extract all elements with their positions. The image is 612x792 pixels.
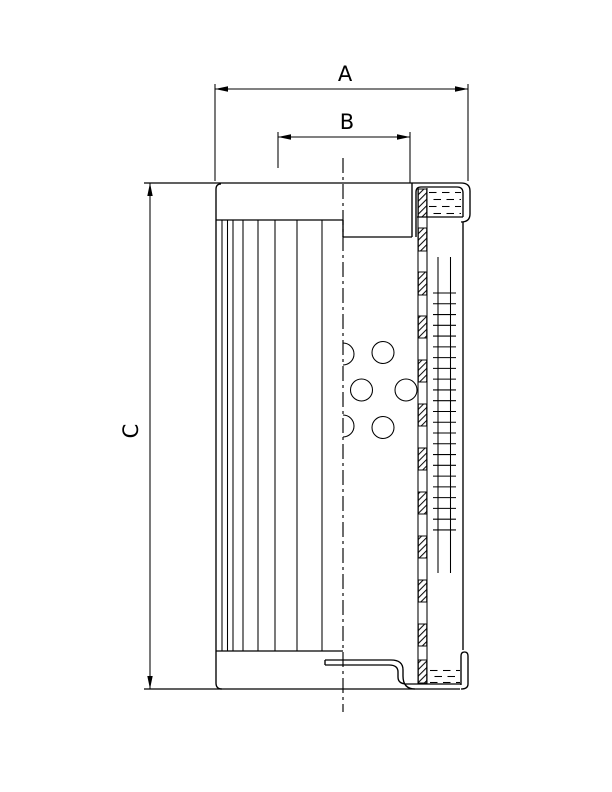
hatch-segment [418,624,426,646]
hole [372,417,394,439]
dimension-c-arrow-bottom [147,676,152,689]
hole [351,379,373,401]
mesh-rails [438,257,451,573]
hatch-segment [418,404,426,426]
hatch-segment [418,272,426,295]
dimension-a-label: A [338,62,353,86]
hatch-segment [418,492,426,514]
hatch-segment [418,448,426,470]
dimension-b-arrow-left [278,134,291,139]
dimension-c-label: C [119,424,143,439]
dimension-a-arrow-right [455,86,468,91]
hatch-segment [418,536,426,558]
bottom-end-cap [144,651,460,689]
gasket-top [429,193,461,214]
mesh-rungs [433,293,456,530]
hatch-segment [418,660,426,683]
support-tube-walls [418,188,427,684]
hole-half-bottom [343,415,354,437]
dimension-b-label: B [340,110,354,134]
dimension-c: C [119,183,153,689]
pleated-filter-media [222,221,322,652]
hatch-segment [418,316,426,338]
dimension-b-arrow-right [397,134,410,139]
hatch-segment [418,360,426,382]
bottom-right-cap-flange [325,652,468,689]
dimension-c-arrow-top [147,183,152,196]
dimension-b: B [278,110,410,183]
support-tube-hatch-segments [418,189,426,683]
hole-half-top [343,343,354,365]
drawing-page: A B C [0,0,612,792]
hatch-segment [418,189,426,217]
dimension-a-arrow-left [215,86,228,91]
gasket-bottom [430,671,460,683]
hatch-segment [418,228,426,251]
perforated-support-tube [418,188,427,684]
element-left-edge [216,189,222,689]
dimension-b-lines [278,132,410,183]
top-end-cap-outline [144,183,412,237]
hole [372,342,394,364]
support-mesh [433,257,456,573]
top-end-cap [144,183,412,237]
filter-element-technical-drawing: A B C [0,0,612,792]
hole [395,379,417,401]
pleat-lines [222,221,322,652]
bottom-end-cap-outline [144,651,460,689]
hatch-segment [418,580,426,602]
drainage-holes [343,342,417,439]
